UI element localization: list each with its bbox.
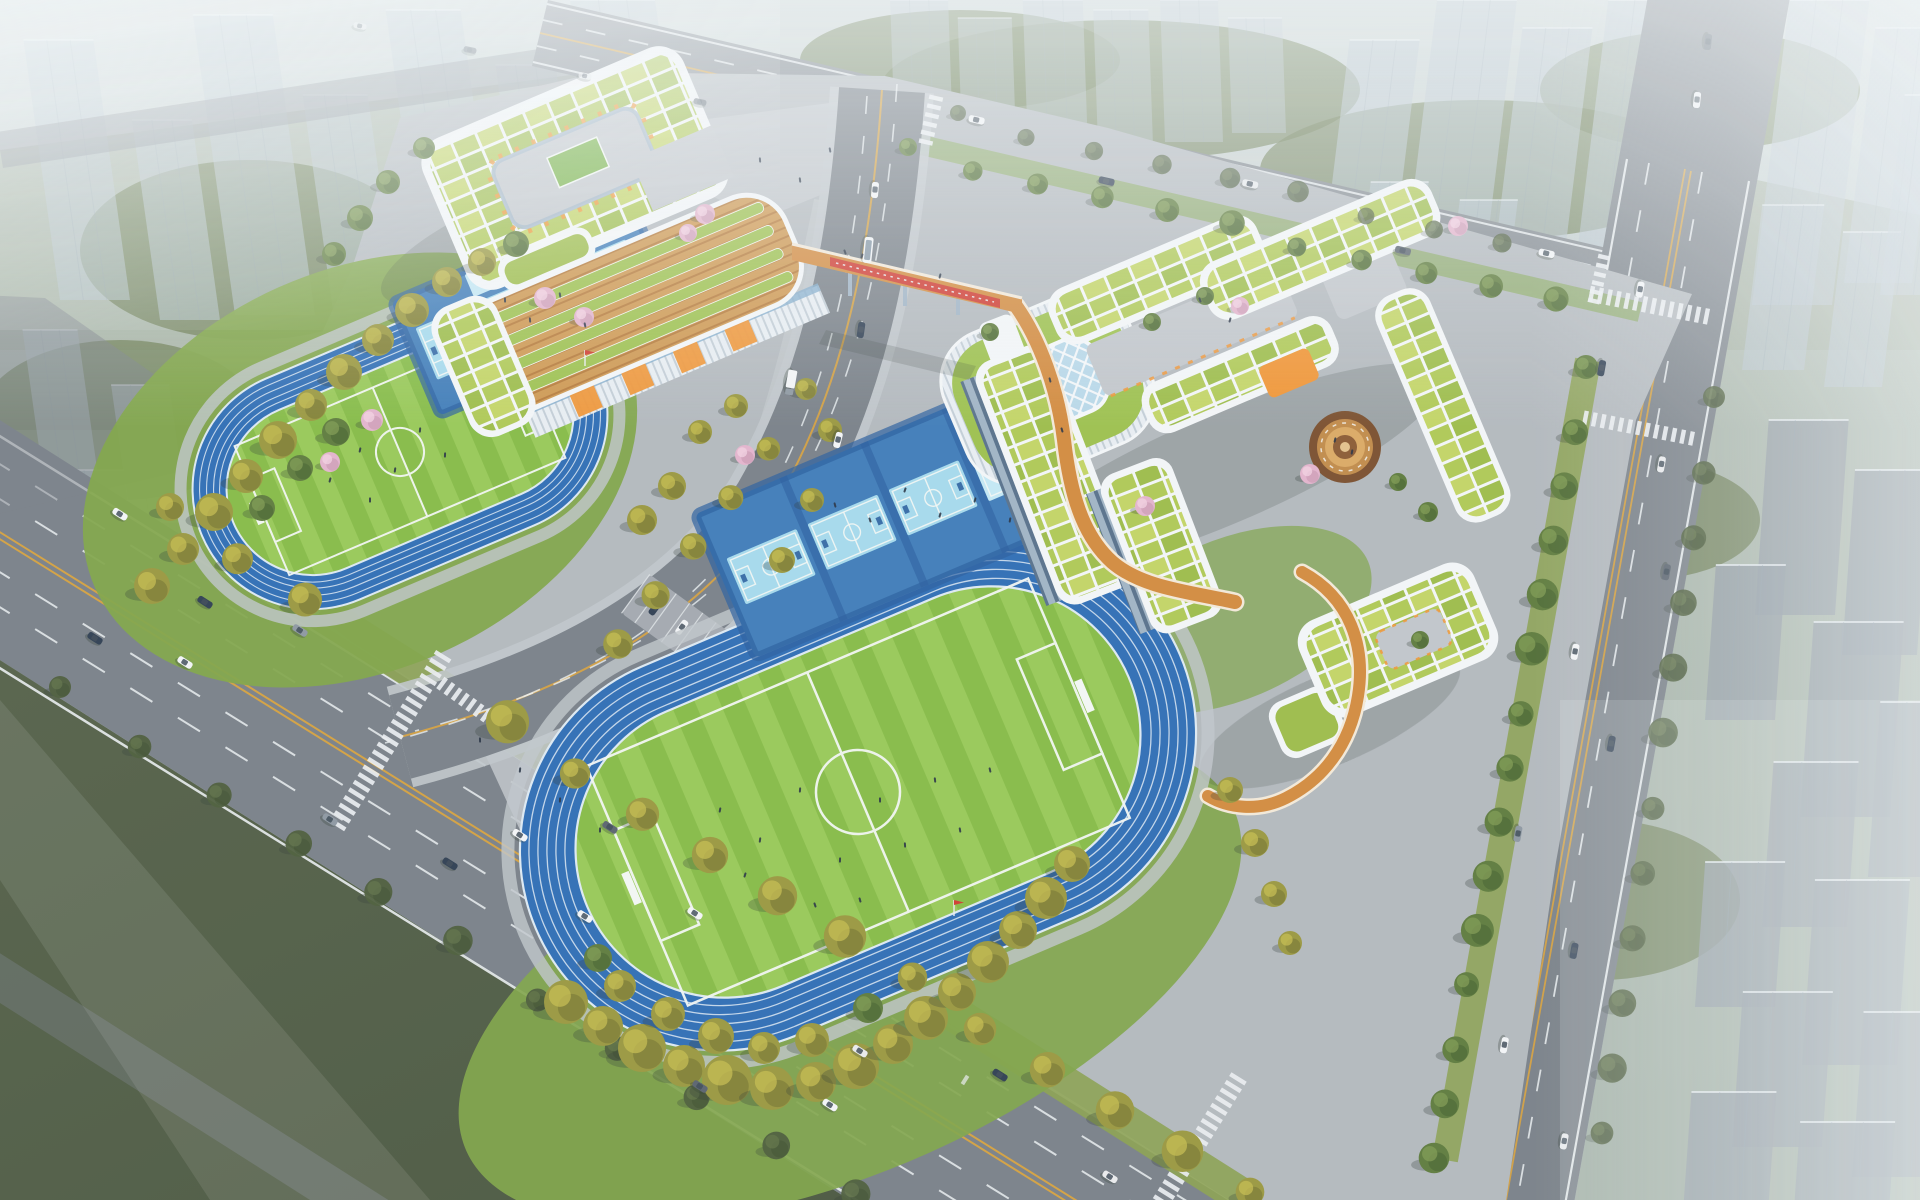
- atmosphere-haze: [0, 0, 1920, 1200]
- scene-svg: Aerial rendering of a modern school camp…: [0, 0, 1920, 1200]
- aerial-render: Aerial rendering of a modern school camp…: [0, 0, 1920, 1200]
